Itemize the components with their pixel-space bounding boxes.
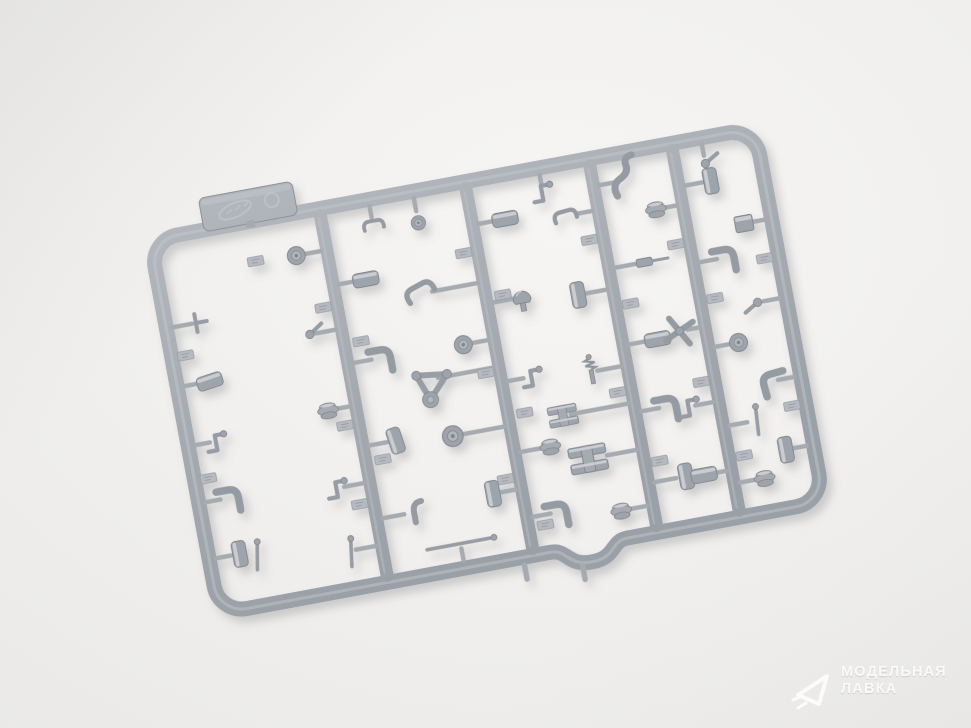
paper-plane-icon — [790, 669, 834, 713]
watermark: МОДЕЛЬНАЯ ЛАВКА — [790, 664, 947, 713]
sprue-runners — [320, 150, 739, 575]
watermark-text-line2: ЛАВКА — [841, 681, 947, 698]
sprue-image — [0, 0, 971, 728]
watermark-text-line1: МОДЕЛЬНАЯ — [841, 664, 947, 681]
photo-background: МОДЕЛЬНАЯ ЛАВКА — [0, 0, 971, 728]
sprue — [144, 96, 830, 646]
sprue-tag — [198, 181, 298, 236]
